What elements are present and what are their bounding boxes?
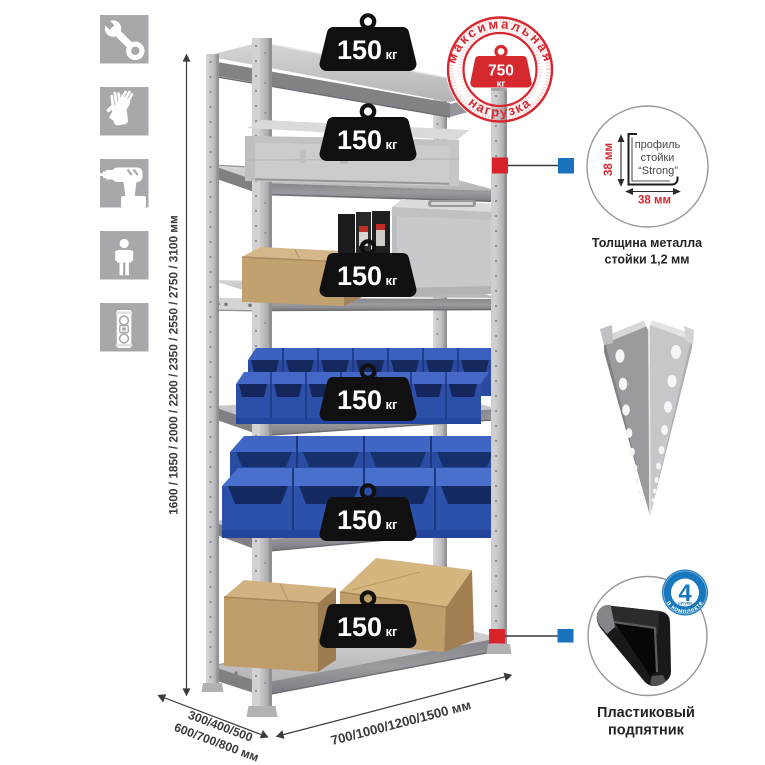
svg-text:кг: кг [386,397,399,412]
svg-text:кг: кг [386,624,399,639]
svg-text:38 мм: 38 мм [603,143,615,176]
svg-text:150: 150 [337,261,382,291]
svg-text:Толщина металла: Толщина металла [592,236,703,250]
svg-text:150: 150 [337,385,382,415]
svg-text:700/1000/1200/1500 мм: 700/1000/1200/1500 мм [329,697,472,748]
svg-text:стойки 1,2 мм: стойки 1,2 мм [605,253,690,267]
svg-text:кг: кг [386,47,399,62]
svg-text:“Strong”: “Strong” [638,165,678,177]
svg-text:подпятник: подпятник [608,723,685,739]
svg-text:кг: кг [386,273,399,288]
svg-text:профиль: профиль [635,139,681,151]
svg-text:штуки: штуки [678,601,692,606]
svg-text:750: 750 [488,63,514,80]
svg-text:кг: кг [497,79,506,90]
svg-text:150: 150 [337,125,382,155]
svg-text:150: 150 [337,505,382,535]
svg-text:кг: кг [386,137,399,152]
svg-text:Пластиковый: Пластиковый [597,705,695,721]
svg-text:150: 150 [337,35,382,65]
svg-text:150: 150 [337,612,382,642]
svg-text:1600 / 1850 / 2000 / 2200 / 23: 1600 / 1850 / 2000 / 2200 / 2350 / 2550 … [167,215,181,515]
svg-text:38 мм: 38 мм [638,195,671,207]
svg-text:кг: кг [386,517,399,532]
svg-text:стойки: стойки [641,152,675,164]
